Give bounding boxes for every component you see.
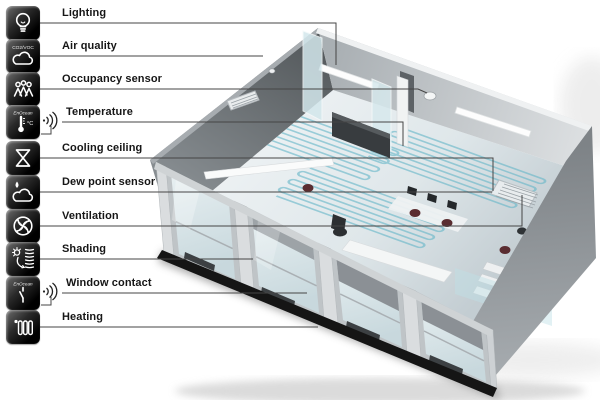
room-render — [0, 0, 600, 400]
diagram-canvas: Lighting CO2/VOC Air quality Occupancy s… — [0, 0, 600, 400]
air-quality-sensor-dot — [269, 69, 275, 73]
occupancy-sensor-disc — [424, 92, 436, 100]
